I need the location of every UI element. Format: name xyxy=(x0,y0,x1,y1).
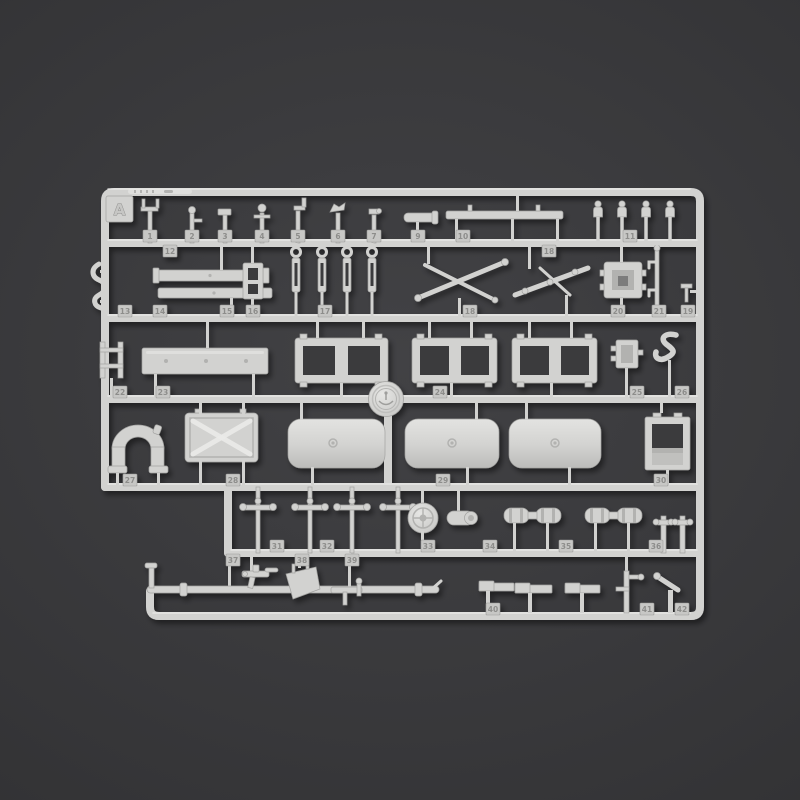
part-number-tag: 10 xyxy=(456,230,470,242)
part-42-lever xyxy=(654,573,679,614)
part-37-gun xyxy=(242,553,278,588)
part-number-tag: 38 xyxy=(295,554,309,566)
part-number-tag: 39 xyxy=(345,554,359,566)
part-number-tag: 25 xyxy=(630,386,644,398)
part-number-label: 21 xyxy=(654,307,664,316)
part-number-tag: 18 xyxy=(542,245,556,257)
part-number-label: 32 xyxy=(322,542,332,551)
part-number-label: 17 xyxy=(320,307,330,316)
part-number-label: 20 xyxy=(613,307,623,316)
part-24-hatch-frame-b xyxy=(412,318,497,399)
part-number-tag: 26 xyxy=(675,386,689,398)
part-number-label: 19 xyxy=(683,307,693,316)
part-number-label: 30 xyxy=(656,476,666,485)
part-number-tag: 40 xyxy=(486,603,500,615)
part-number-label: 42 xyxy=(677,605,687,614)
part-number-label: 16 xyxy=(248,307,258,316)
part-number-tag: 27 xyxy=(123,474,137,486)
part-number-label: 41 xyxy=(642,605,652,614)
part-number-label: 12 xyxy=(165,247,175,256)
part-number-tag: 36 xyxy=(649,540,663,552)
part-valve-c xyxy=(334,487,371,553)
part-number-label: 9 xyxy=(415,232,420,241)
part-number-tag: 18 xyxy=(463,305,477,317)
part-number-label: 28 xyxy=(228,476,238,485)
part-number-tag: 1 xyxy=(143,230,157,242)
part-number-tag: 42 xyxy=(675,603,689,615)
sprue-letter-tab: A xyxy=(106,196,133,222)
part-number-tag: 17 xyxy=(318,305,332,317)
brand-medallion xyxy=(369,382,404,417)
part-number-label: 26 xyxy=(677,388,687,397)
part-number-tag: 9 xyxy=(411,230,425,242)
part-18-davit-a xyxy=(415,243,509,318)
part-number-tag: 5 xyxy=(291,230,305,242)
part-number-label: 10 xyxy=(458,232,468,241)
part-number-tag: 31 xyxy=(270,540,284,552)
part-19-small-tee xyxy=(681,284,698,302)
part-26-s-hook xyxy=(656,334,676,399)
sprue-photo: A xyxy=(0,0,800,800)
part-number-tag: 13 xyxy=(118,305,132,317)
part-number-label: 3 xyxy=(222,232,227,241)
part-number-label: 15 xyxy=(222,307,232,316)
part-number-tag: 3 xyxy=(218,230,232,242)
part-number-tag: 20 xyxy=(611,305,625,317)
part-number-tag: 32 xyxy=(320,540,334,552)
part-number-label: 18 xyxy=(544,247,554,256)
part-number-tag: 28 xyxy=(226,474,240,486)
part-number-tag: 7 xyxy=(367,230,381,242)
part-35-twin-cylinder-a xyxy=(504,508,561,553)
part-40-tee-b xyxy=(515,583,552,613)
part-number-label: 13 xyxy=(120,307,130,316)
part-21-hook-rod xyxy=(649,243,660,312)
part-number-label: 11 xyxy=(625,232,635,241)
product-photo: A xyxy=(0,0,800,800)
part-number-label: 7 xyxy=(371,232,376,241)
part-number-label: 18 xyxy=(465,307,475,316)
part-number-tag: 33 xyxy=(421,540,435,552)
part-number-label: 27 xyxy=(125,476,135,485)
part-number-tag: 24 xyxy=(433,386,447,398)
part-number-label: 37 xyxy=(228,556,238,565)
part-number-tag: 34 xyxy=(483,540,497,552)
part-number-tag: 30 xyxy=(654,474,668,486)
mold-marking xyxy=(128,189,192,194)
part-float-b xyxy=(405,399,499,487)
part-number-tag: 19 xyxy=(681,305,695,317)
part-number-label: 39 xyxy=(347,556,357,565)
part-number-tag: 2 xyxy=(185,230,199,242)
part-number-tag: 16 xyxy=(246,305,260,317)
sprue-letter: A xyxy=(114,201,126,219)
part-number-label: 14 xyxy=(155,307,165,316)
part-24-hatch-frame-c xyxy=(512,318,597,399)
part-number-label: 2 xyxy=(189,232,194,241)
part-number-label: 5 xyxy=(295,232,300,241)
part-number-tag: 35 xyxy=(559,540,573,552)
part-number-label: 31 xyxy=(272,542,282,551)
part-number-label: 34 xyxy=(485,542,495,551)
part-number-tag: 22 xyxy=(113,386,127,398)
part-number-label: 22 xyxy=(115,388,125,397)
part-number-tag: 29 xyxy=(436,474,450,486)
part-number-label: 36 xyxy=(651,542,661,551)
part-number-label: 29 xyxy=(438,476,448,485)
part-number-tag: 12 xyxy=(163,245,177,257)
part-number-label: 4 xyxy=(259,232,264,241)
part-number-tag: 14 xyxy=(153,305,167,317)
part-float-a xyxy=(288,399,385,487)
part-13-s-bracket xyxy=(93,264,107,308)
part-number-tag: 41 xyxy=(640,603,654,615)
part-number-tag: 11 xyxy=(623,230,637,242)
part-number-tag: 23 xyxy=(156,386,170,398)
part-28-x-panel xyxy=(185,399,258,487)
part-17-shackles xyxy=(292,243,377,318)
part-number-tag: 21 xyxy=(652,305,666,317)
part-number-label: 23 xyxy=(158,388,168,397)
part-number-tag: 37 xyxy=(226,554,240,566)
part-number-label: 38 xyxy=(297,556,307,565)
part-number-label: 40 xyxy=(488,605,498,614)
part-35-twin-cylinder-b xyxy=(585,508,642,553)
part-number-label: 6 xyxy=(335,232,340,241)
part-searchlight xyxy=(447,487,478,525)
part-float-c xyxy=(509,399,601,487)
part-40-tee-c xyxy=(565,583,600,613)
part-number-tag: 4 xyxy=(255,230,269,242)
part-27-arch xyxy=(108,424,168,487)
part-number-label: 24 xyxy=(435,388,445,397)
part-number-label: 33 xyxy=(423,542,433,551)
part-number-label: 35 xyxy=(561,542,571,551)
part-number-label: 1 xyxy=(147,232,152,241)
part-number-label: 25 xyxy=(632,388,642,397)
part-number-tag: 15 xyxy=(220,305,234,317)
part-number-tag: 6 xyxy=(331,230,345,242)
